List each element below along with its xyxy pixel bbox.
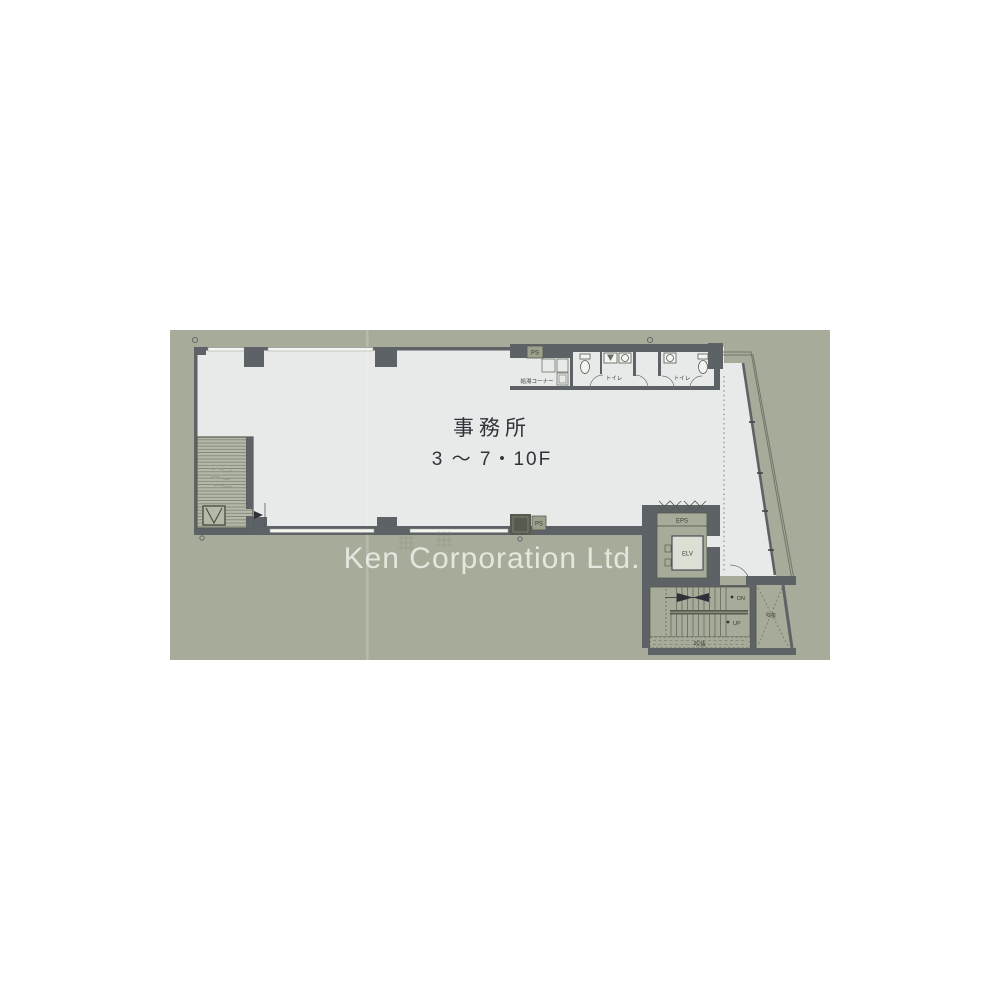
toilet1-east-wall [633, 352, 636, 376]
elevator-label: ELV [682, 552, 693, 558]
floor-range-label: 3 ～ 7・10F [432, 449, 552, 470]
kitchen-counter [542, 359, 555, 372]
dn-dot [731, 596, 734, 599]
ps-top-label: PS [531, 351, 539, 357]
toilet-bowl [699, 361, 708, 374]
east-thick-wall-lower [246, 516, 253, 528]
toilet2-west-wall [658, 352, 661, 376]
toilet-tank [698, 354, 708, 359]
kitchen-label: 給湯コーナー [520, 377, 553, 385]
service-south-wall [510, 386, 720, 390]
void-north-wall [746, 576, 796, 585]
ps-bottom-label: PS [535, 522, 543, 528]
column [377, 517, 397, 535]
stair-west-wall [642, 585, 650, 648]
toilet-east-wall [714, 367, 720, 387]
elevator-hall-opening [707, 536, 720, 547]
up-dot [727, 621, 730, 624]
toilet-tank [580, 354, 590, 359]
stair-east-wall [750, 585, 756, 648]
east-thick-wall [246, 437, 253, 509]
stair-down-label: DN [737, 596, 745, 602]
room-label: 事務所 [453, 417, 531, 440]
void-south-wall [752, 648, 796, 655]
stair-flight-lower [670, 615, 730, 637]
toilet-bowl [581, 361, 590, 374]
column [244, 347, 264, 367]
watermark-text: Ken Corporation Ltd. [344, 542, 641, 575]
window [268, 348, 373, 352]
void-side-label: 吹抜 [766, 612, 776, 619]
window [410, 529, 508, 533]
floor-plan-svg: PS 給湯コーナー トイレ トイレ [170, 330, 830, 660]
paper-fold-line [366, 330, 369, 660]
northeast-corner-block [708, 343, 723, 369]
floor-plan-image: PS 給湯コーナー トイレ トイレ [170, 330, 830, 660]
window [208, 348, 244, 352]
eps-label: EPS [676, 519, 688, 525]
void-stair-label: 吹抜 [694, 640, 706, 648]
stall-partition [600, 352, 602, 374]
kitchen-east-wall [570, 352, 573, 388]
kitchen-counter [557, 359, 568, 372]
stair-up-label: UP [733, 621, 741, 627]
column [375, 347, 397, 367]
eps-elv-block: EPS ELV [642, 501, 720, 585]
toilet-left-label: トイレ [606, 376, 623, 382]
toilet-right-label: トイレ [674, 376, 691, 382]
window [270, 529, 374, 533]
stair-south-wall [648, 648, 752, 655]
